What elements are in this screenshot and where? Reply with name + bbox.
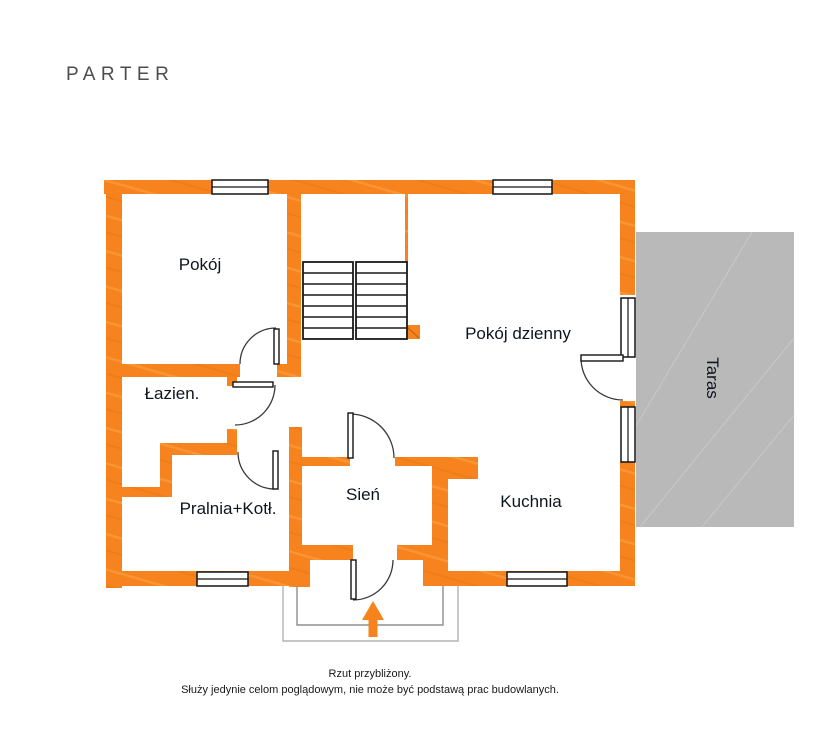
wall-pokoj-door-stub	[277, 364, 301, 377]
room-label-kuchnia: Kuchnia	[500, 492, 561, 512]
room-label-lazienka: Łazien.	[145, 384, 200, 404]
wall-lazienka-top	[122, 364, 240, 377]
window-pralnia-bottom	[197, 572, 248, 586]
wall-sien-top-left	[302, 457, 350, 466]
door-pokoj	[240, 328, 279, 364]
floor-plan-drawing	[0, 0, 822, 736]
wall-left	[106, 180, 122, 588]
wall-kuchnia-stub	[432, 457, 478, 479]
disclaimer-note: Rzut przybliżony. Służy jedynie celom po…	[0, 667, 740, 698]
floor-plan-page: PARTER Pokój Pokój dzienny Łazien. Praln…	[0, 0, 822, 736]
window-kuchnia-bottom	[507, 572, 567, 586]
room-label-taras: Taras	[702, 357, 722, 399]
door-lazienka	[233, 382, 275, 425]
window-pokoj-top	[212, 180, 268, 194]
door-taras	[581, 355, 623, 400]
page-title: PARTER	[66, 64, 174, 86]
wall-right-lower	[620, 462, 635, 586]
wall-top	[104, 180, 635, 194]
room-label-pralnia: Pralnia+Kotł.	[180, 499, 277, 519]
wall-sien-top-right	[395, 457, 432, 466]
door-sien-inner	[348, 413, 394, 458]
door-entrance	[351, 560, 393, 600]
entrance-arrow-icon	[362, 601, 384, 637]
wall-sien-bottom-right	[397, 545, 423, 560]
room-label-pokoj: Pokój	[179, 255, 222, 275]
staircase	[303, 262, 407, 339]
stairs-rail-line	[405, 194, 408, 262]
window-taras-lower	[621, 407, 635, 462]
wall-sien-bottom-left	[295, 545, 353, 560]
window-pokoj-dzienny-top	[493, 180, 552, 194]
room-label-pokoj-dzienny: Pokój dzienny	[465, 324, 571, 344]
wall-lazienka-stub-lower	[227, 429, 237, 443]
wall-sien-right-column	[423, 545, 443, 586]
disclaimer-line-2: Służy jedynie celom poglądowym, nie może…	[0, 683, 740, 699]
wall-right-upper	[620, 180, 635, 295]
disclaimer-line-1: Rzut przybliżony.	[0, 667, 740, 683]
door-pralnia	[238, 451, 278, 489]
wall-pralnia-step-horizontal	[117, 487, 162, 497]
window-taras-upper	[621, 298, 635, 357]
wall-pokoj-right	[287, 194, 301, 377]
wall-pralnia-top	[172, 443, 237, 455]
room-label-sien: Sień	[346, 485, 380, 505]
